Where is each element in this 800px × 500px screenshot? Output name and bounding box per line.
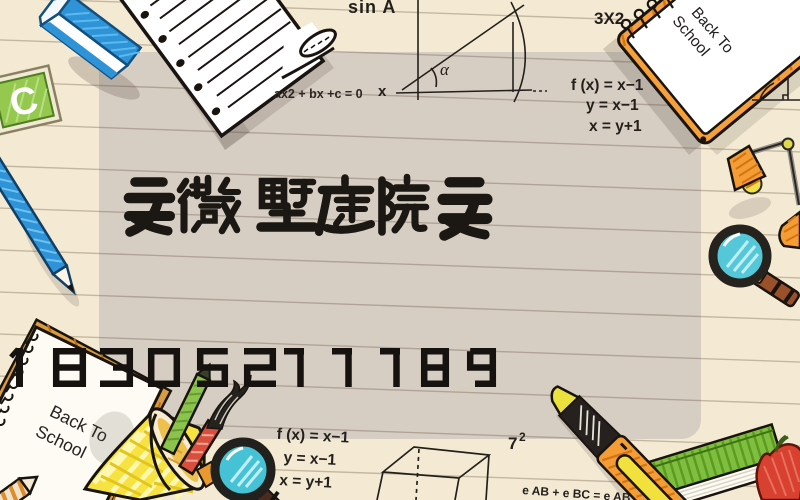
svg-text:α: α xyxy=(440,60,450,79)
svg-text:x = y+1: x = y+1 xyxy=(589,118,642,135)
svg-text:7: 7 xyxy=(508,434,517,453)
svg-text:y = x−1: y = x−1 xyxy=(586,97,639,114)
svg-text:2: 2 xyxy=(519,430,526,444)
svg-text:x = y+1: x = y+1 xyxy=(279,472,333,492)
svg-text:f (x) = x−1: f (x) = x−1 xyxy=(571,77,644,94)
svg-text:3X2: 3X2 xyxy=(594,9,624,28)
svg-text:x: x xyxy=(378,83,387,100)
svg-text:y = x−1: y = x−1 xyxy=(283,449,337,469)
svg-text:ax2 + bx +c = 0: ax2 + bx +c = 0 xyxy=(274,87,363,101)
svg-text:sin A: sin A xyxy=(348,0,396,17)
